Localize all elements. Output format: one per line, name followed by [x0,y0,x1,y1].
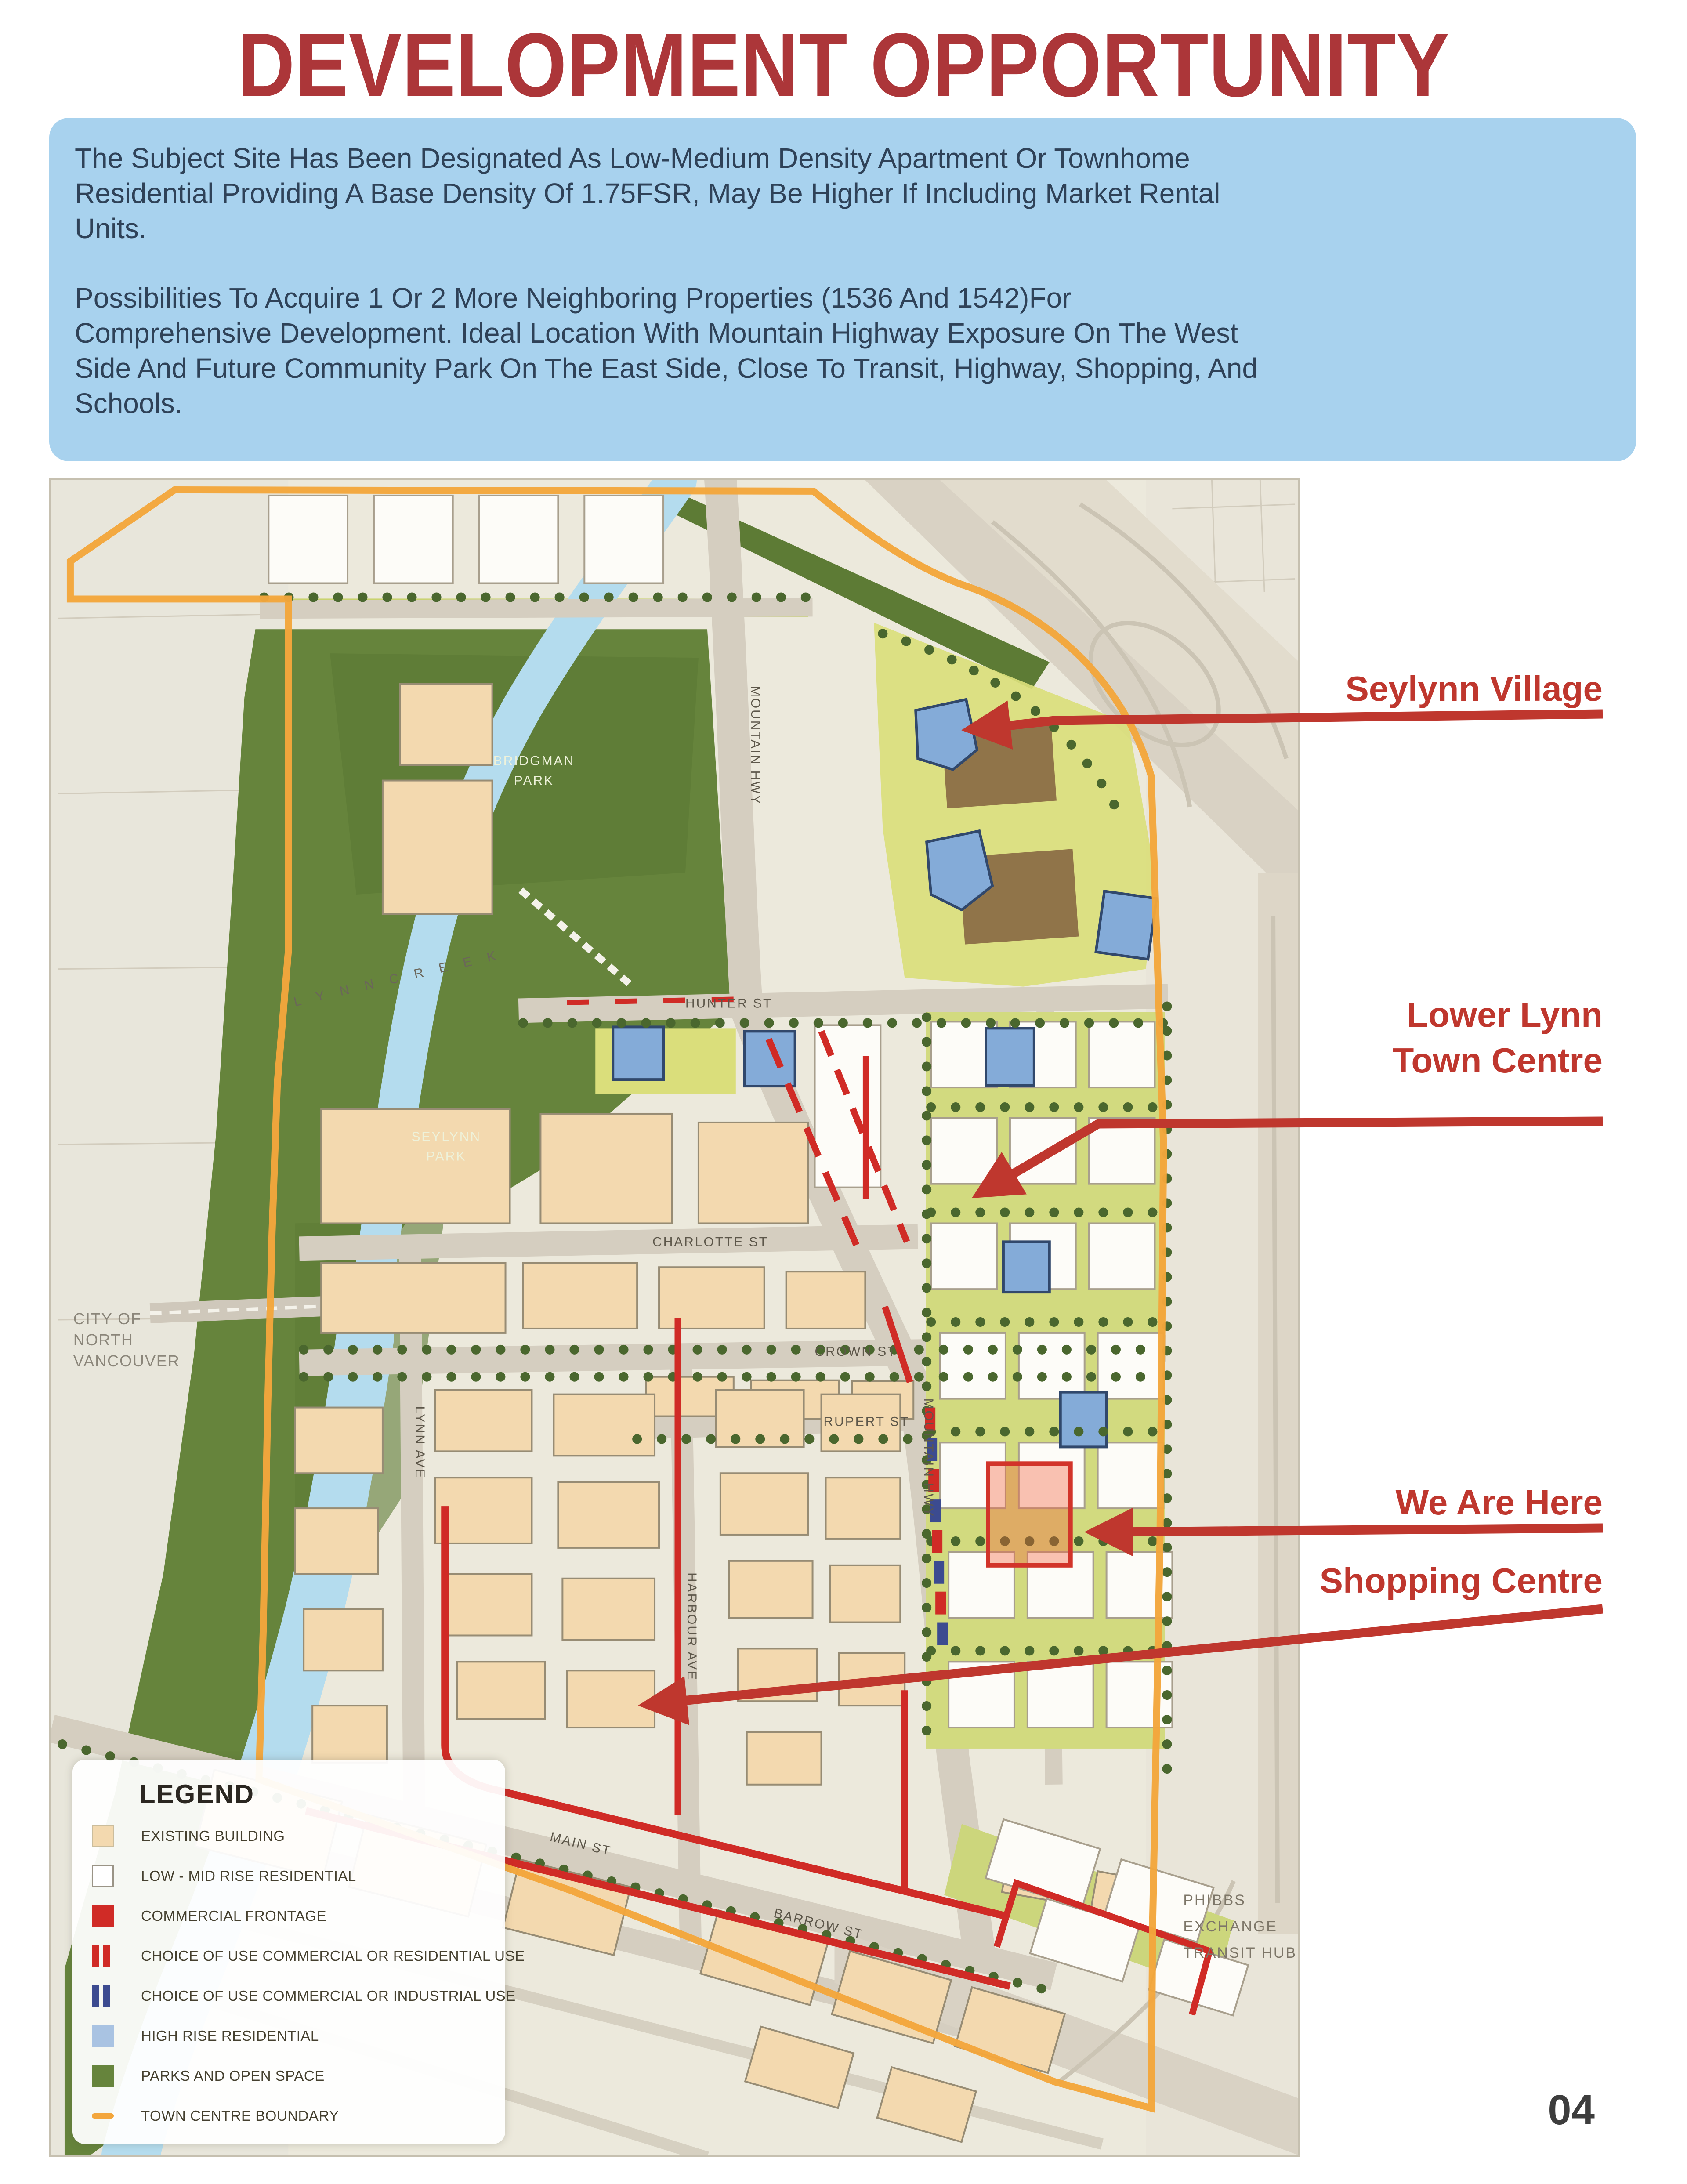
harbour-ave-label: HARBOUR AVE [684,1572,699,1681]
bridgman-park-label-2: PARK [514,774,554,788]
intro-paragraph-2: Possibilities To Acquire 1 Or 2 More Nei… [75,280,1610,421]
boundary-swatch-icon [92,2105,114,2127]
legend-item-commercial-frontage: COMMERCIAL FRONTAGE [92,1905,492,1927]
phibbs-label-1: PHIBBS [1183,1892,1246,1909]
lower-lynn-town-centre-label: Lower Lynn Town Centre [1392,992,1603,1083]
phibbs-label-3: TRANSIT HUB [1183,1945,1297,1961]
legend-item-high-rise: HIGH RISE RESIDENTIAL [92,2025,492,2047]
mountain-hwy-label-upper: MOUNTAIN HWY [748,686,763,805]
parks-swatch-icon [92,2065,114,2087]
charlotte-st-label: CHARLOTTE ST [652,1235,768,1249]
high-rise-swatch-icon [92,2025,114,2047]
lynn-ave-label: LYNN AVE [413,1406,427,1479]
low-mid-rise-swatch-icon [92,1865,114,1887]
legend-title: LEGEND [139,1779,492,1809]
page-number: 04 [1548,2086,1595,2134]
city-of-label-1: CITY OF [73,1310,141,1328]
mountain-hwy-label-lower: MOUNTAIN HWY [921,1398,936,1518]
legend: LEGEND EXISTING BUILDING LOW - MID RISE … [72,1760,505,2144]
choice-commercial-residential-swatch-icon [92,1945,114,1967]
legend-item-choice-commercial-industrial: CHOICE OF USE COMMERCIAL OR INDUSTRIAL U… [92,1985,492,2007]
legend-item-parks: PARKS AND OPEN SPACE [92,2065,492,2087]
commercial-frontage-swatch-icon [92,1905,114,1927]
rupert-st-label: RUPERT ST [824,1414,910,1429]
page-title: DEVELOPMENT OPPORTUNITY [101,13,1586,117]
bridgman-park-label-1: BRIDGMAN [493,754,575,768]
intro-box: The Subject Site Has Been Designated As … [49,118,1636,461]
hunter-st-label: HUNTER ST [685,996,772,1011]
shopping-centre-label: Shopping Centre [1320,1558,1603,1604]
legend-item-choice-commercial-residential: CHOICE OF USE COMMERCIAL OR RESIDENTIAL … [92,1945,492,1967]
existing-building-swatch-icon [92,1825,114,1847]
seylynn-park-label-2: PARK [426,1149,466,1164]
intro-paragraph-1: The Subject Site Has Been Designated As … [75,141,1610,246]
legend-item-boundary: TOWN CENTRE BOUNDARY [92,2105,492,2127]
city-of-label-2: NORTH [73,1331,134,1349]
legend-item-existing-building: EXISTING BUILDING [92,1825,492,1847]
choice-commercial-industrial-swatch-icon [92,1985,114,2007]
phibbs-label-2: EXCHANGE [1183,1918,1278,1935]
seylynn-park-label-1: SEYLYNN [411,1130,481,1144]
we-are-here-label: We Are Here [1396,1480,1603,1525]
city-of-label-3: VANCOUVER [73,1352,180,1370]
subject-site-marker[interactable] [988,1463,1071,1565]
flyer-page: DEVELOPMENT OPPORTUNITY The Subject Site… [0,0,1687,2184]
seylynn-village-label: Seylynn Village [1346,666,1603,712]
charlotte-st-road [299,1236,918,1249]
legend-item-low-mid-rise: LOW - MID RISE RESIDENTIAL [92,1865,492,1887]
crown-st-label: CROWN ST [815,1344,897,1359]
